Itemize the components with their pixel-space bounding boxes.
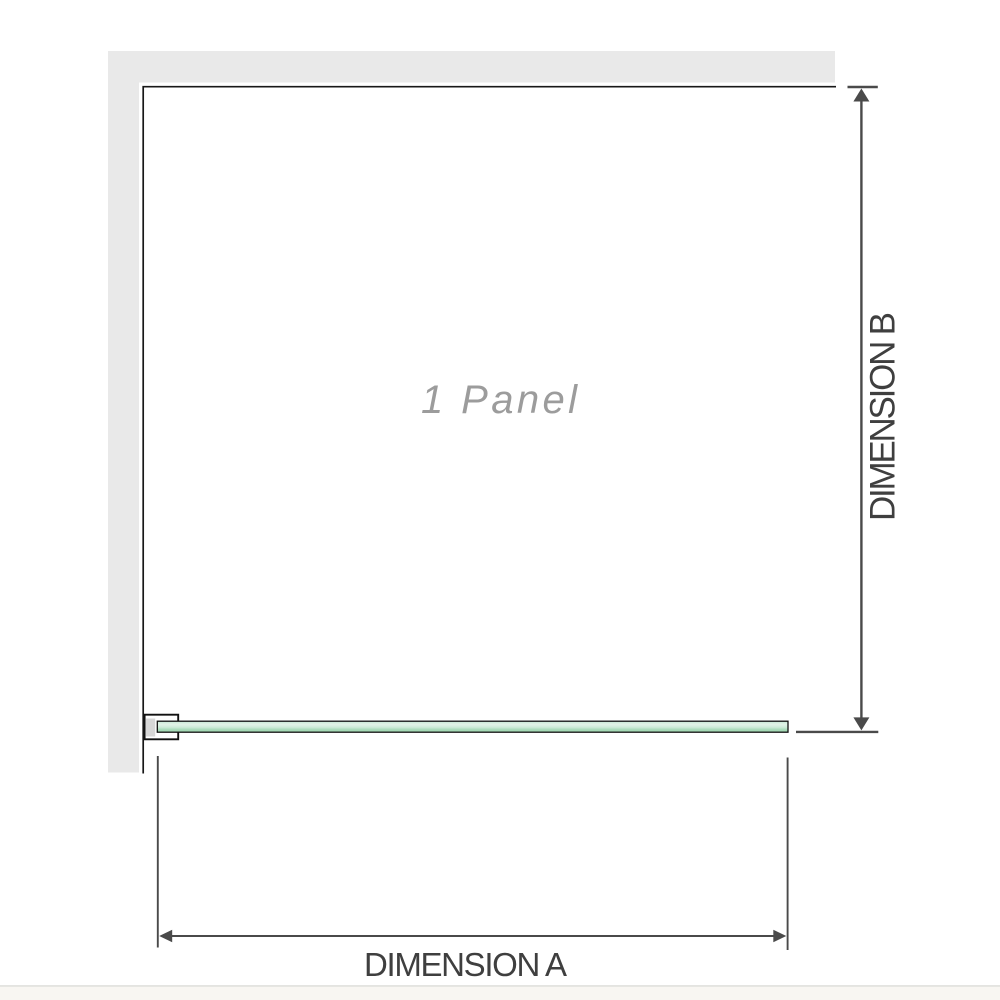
svg-text:DIMENSION B: DIMENSION B [864,312,903,521]
svg-text:DIMENSION A: DIMENSION A [364,946,567,983]
